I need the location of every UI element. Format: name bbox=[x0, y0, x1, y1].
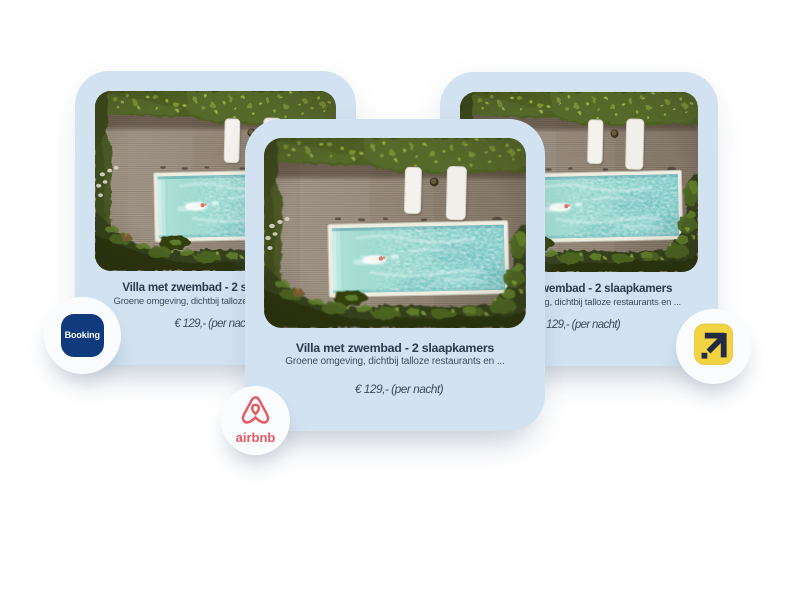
svg-text:airbnb: airbnb bbox=[235, 430, 275, 445]
